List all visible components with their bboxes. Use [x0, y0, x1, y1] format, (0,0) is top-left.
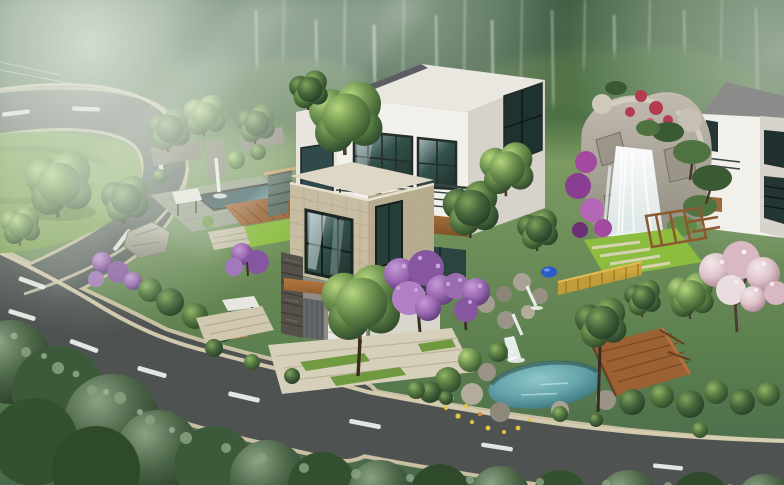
garage-door-dark [303, 298, 324, 340]
blue-object [541, 267, 557, 278]
neighbor-villa [700, 82, 784, 238]
villa-tree [480, 142, 534, 196]
front-tree-trunk [358, 340, 360, 376]
neighbor-window [764, 130, 784, 168]
pond-tree-trunk [598, 348, 600, 412]
aerial-villa-rendering [0, 0, 784, 485]
rendering-stage [0, 0, 784, 485]
neighbor-window [764, 176, 784, 224]
